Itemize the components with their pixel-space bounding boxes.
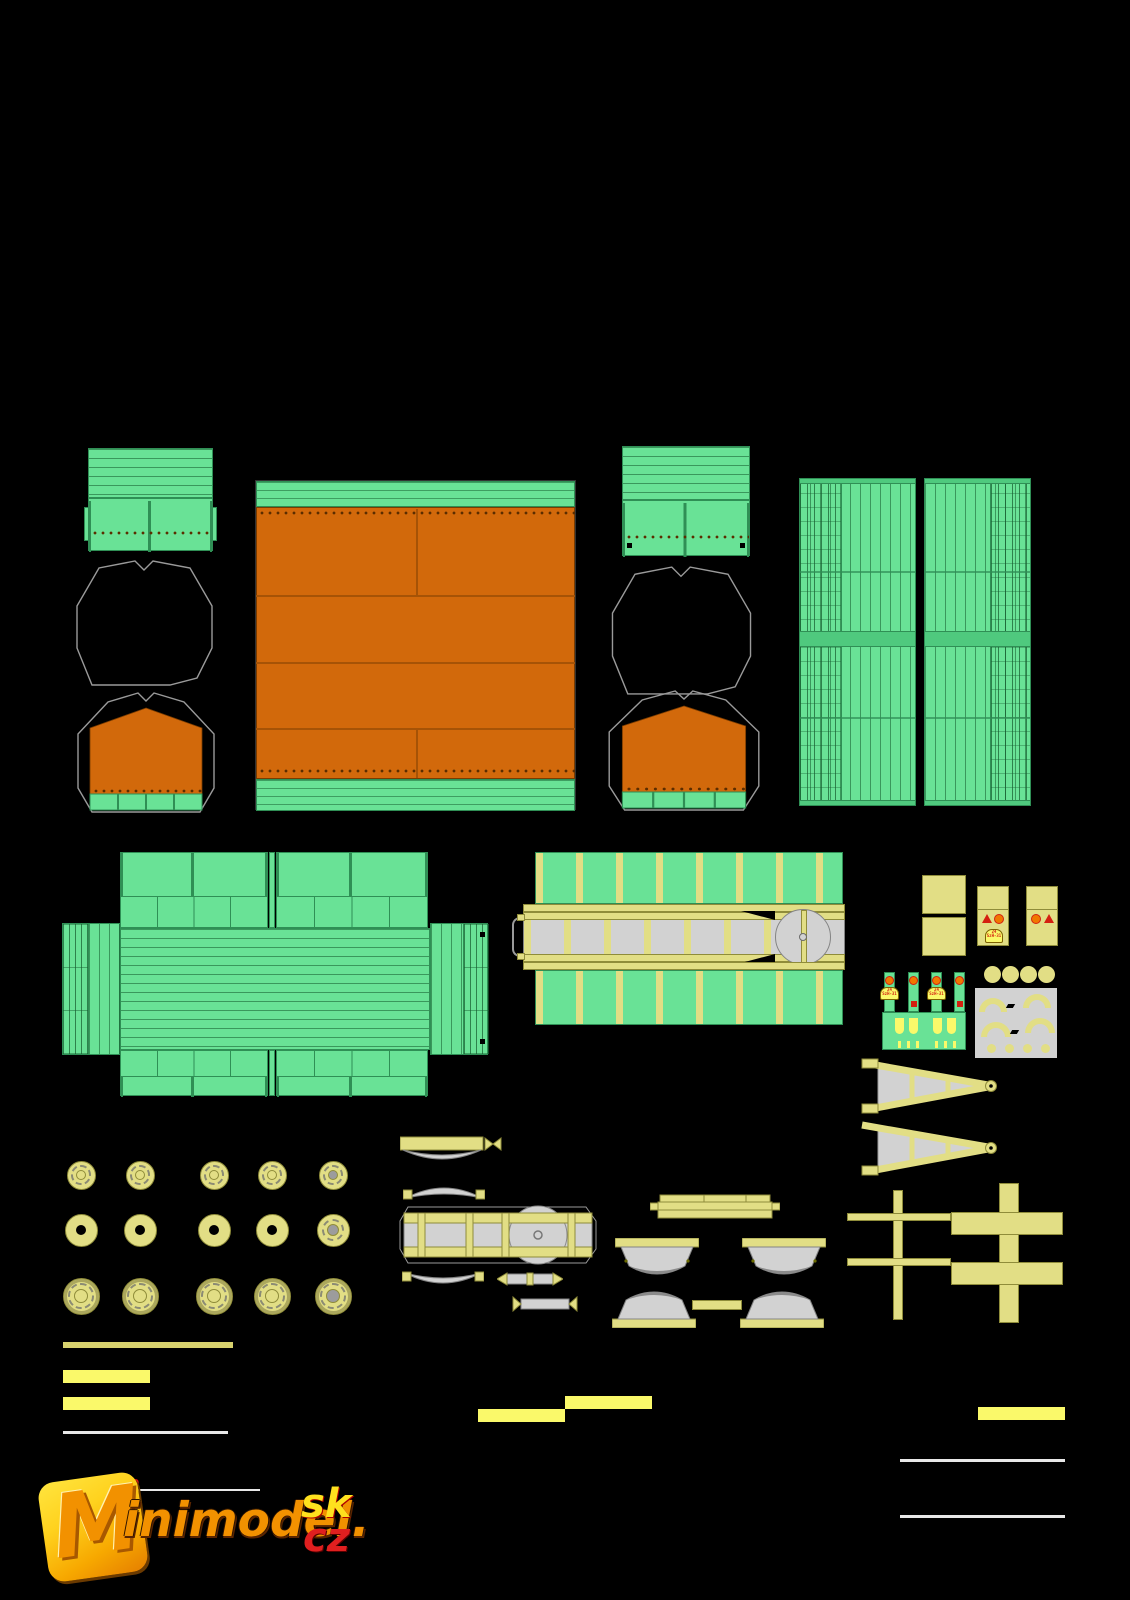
strip-bright-right [978, 1407, 1065, 1420]
wheel-hub [209, 1225, 220, 1236]
wheel-hub [265, 1289, 279, 1303]
wheel-r2-c5 [317, 1214, 350, 1247]
wheel-r1-c5 [319, 1161, 348, 1190]
strip-bright-2 [63, 1397, 150, 1410]
wheel-r3-c5 [315, 1278, 352, 1315]
strip-gray-right-1 [900, 1459, 1065, 1462]
wheel-hub [76, 1225, 87, 1236]
wheel-r3-c3 [196, 1278, 233, 1315]
publisher-logo: 100 M inimodel. sk cz [35, 1465, 385, 1585]
wheel-hub [135, 1225, 146, 1236]
wheel-set [0, 0, 1130, 1600]
wheel-hub [133, 1289, 147, 1303]
wheel-r3-c1 [63, 1278, 100, 1315]
wheel-hub [207, 1289, 221, 1303]
wheel-r1-c2 [126, 1161, 155, 1190]
strip-gray-left [63, 1431, 228, 1434]
logo-domain-cz: cz [303, 1515, 350, 1561]
wheel-r2-c4 [256, 1214, 289, 1247]
strip-step-upper [565, 1396, 652, 1409]
wheel-r2-c1 [65, 1214, 98, 1247]
wheel-hub [74, 1289, 88, 1303]
wheel-hub [326, 1289, 340, 1303]
wheel-r1-c4 [258, 1161, 287, 1190]
wheel-r3-c2 [122, 1278, 159, 1315]
wheel-r1-c3 [200, 1161, 229, 1190]
strip-step-lower [478, 1409, 565, 1422]
strip-gray-right-2 [900, 1515, 1065, 1518]
paper-model-sheet: 24 SzH-31 24 SzH-31 24 SzH-31 [0, 0, 1130, 1600]
wheel-r3-c4 [254, 1278, 291, 1315]
strip-bright-1 [63, 1370, 150, 1383]
wheel-hub [267, 1225, 278, 1236]
wheel-r2-c3 [198, 1214, 231, 1247]
wheel-r1-c1 [67, 1161, 96, 1190]
strip-long-thin [63, 1342, 233, 1348]
wheel-r2-c2 [124, 1214, 157, 1247]
